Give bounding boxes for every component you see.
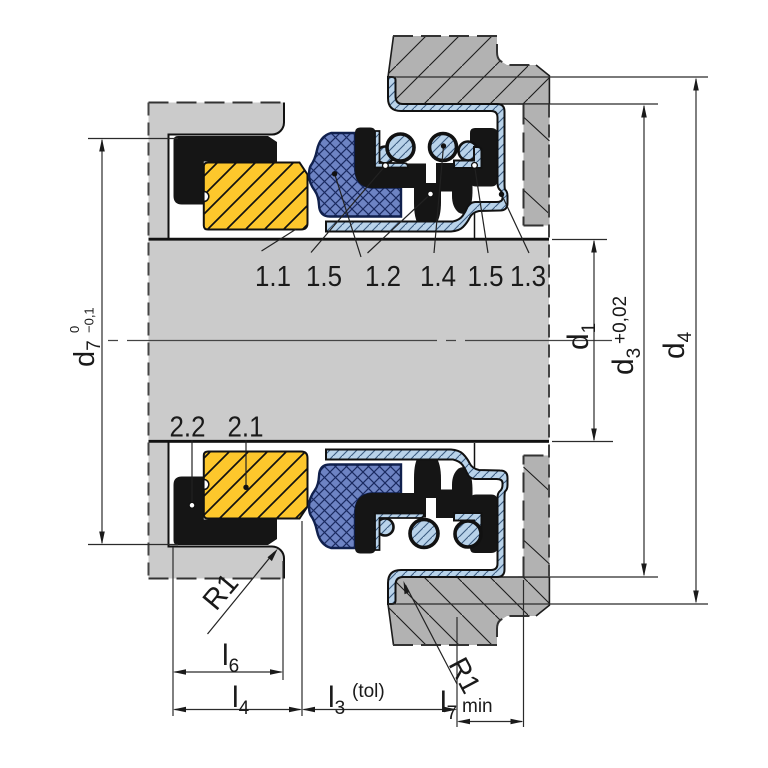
svg-text:0: 0 bbox=[67, 326, 82, 333]
svg-text:2.1: 2.1 bbox=[228, 412, 264, 444]
svg-text:−0,1: −0,1 bbox=[82, 307, 97, 333]
svg-text:(tol): (tol) bbox=[352, 681, 385, 702]
svg-text:1.5: 1.5 bbox=[468, 261, 504, 293]
svg-text:1.2: 1.2 bbox=[365, 261, 401, 293]
svg-text:min: min bbox=[462, 696, 493, 717]
svg-text:1.1: 1.1 bbox=[255, 261, 291, 293]
svg-text:+0,02: +0,02 bbox=[610, 296, 631, 344]
svg-text:2.2: 2.2 bbox=[170, 412, 206, 444]
svg-text:1.3: 1.3 bbox=[510, 261, 546, 293]
svg-text:1.5: 1.5 bbox=[306, 261, 342, 293]
svg-text:1.4: 1.4 bbox=[420, 261, 456, 293]
